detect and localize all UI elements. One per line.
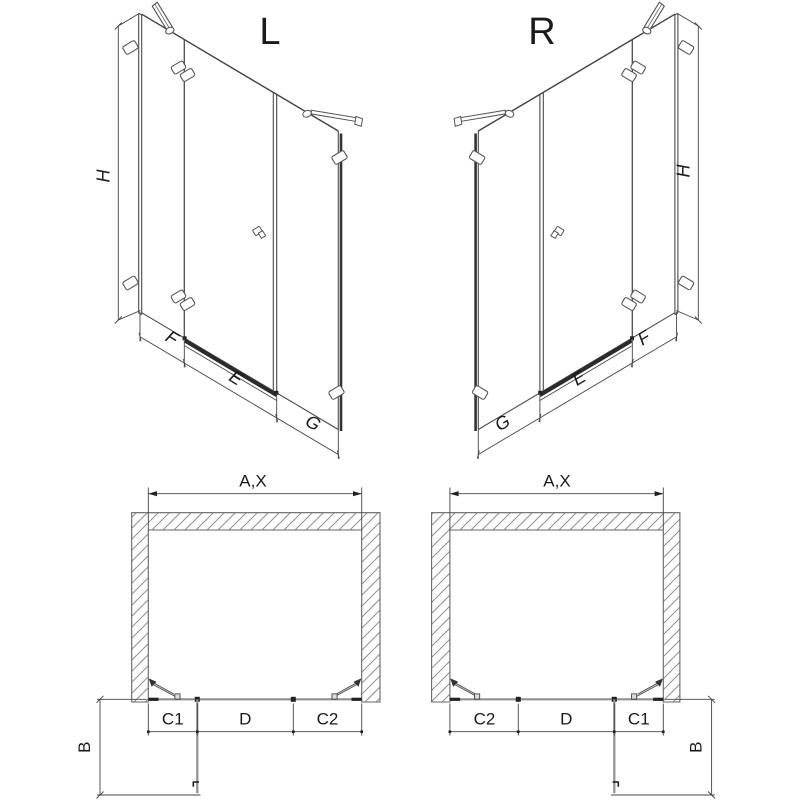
niche-wall-hatch-left bbox=[132, 513, 380, 702]
iso-left-dim-f: F bbox=[162, 326, 183, 349]
shower-enclosure-diagram: L R H H F E G G E F A,X A,X C1 D C2 C2 D… bbox=[0, 0, 800, 800]
plan-left-seg-c2: C2 bbox=[317, 710, 339, 729]
iso-left-height-label: H bbox=[94, 169, 114, 183]
iso-right-height-label: H bbox=[674, 164, 694, 178]
iso-left-title: L bbox=[259, 11, 280, 53]
iso-view-right bbox=[454, 2, 702, 459]
iso-right-title: R bbox=[528, 11, 555, 53]
plan-right-width-label: A,X bbox=[543, 472, 570, 491]
technical-drawing-page: L R H H F E G G E F A,X A,X C1 D C2 C2 D… bbox=[0, 0, 800, 800]
iso-left-dim-g: G bbox=[302, 411, 324, 435]
plan-right-seg-d: D bbox=[560, 710, 572, 729]
iso-right-dim-f: F bbox=[634, 326, 655, 349]
plan-right-seg-c1: C1 bbox=[628, 710, 650, 729]
iso-left-dim-e: E bbox=[226, 366, 247, 390]
plan-left-seg-c1: C1 bbox=[162, 710, 184, 729]
plan-left-seg-d: D bbox=[239, 710, 251, 729]
plan-right-seg-c2: C2 bbox=[474, 710, 496, 729]
plan-left-depth-label: B bbox=[75, 742, 94, 753]
iso-right-dim-g: G bbox=[491, 411, 513, 435]
iso-view-left bbox=[115, 2, 363, 459]
plan-right-depth-label: B bbox=[687, 742, 706, 753]
plan-left-width-label: A,X bbox=[239, 472, 266, 491]
niche-wall-hatch-right bbox=[432, 513, 680, 702]
